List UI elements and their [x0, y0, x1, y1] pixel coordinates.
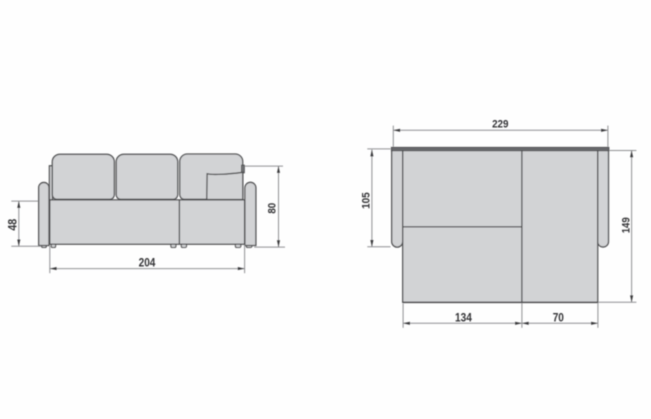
svg-text:48: 48 [6, 219, 20, 231]
svg-text:80: 80 [267, 203, 279, 214]
svg-text:134: 134 [455, 310, 472, 324]
svg-text:149: 149 [620, 217, 632, 233]
svg-text:105: 105 [361, 192, 373, 209]
svg-text:204: 204 [139, 256, 156, 270]
svg-text:70: 70 [553, 310, 564, 324]
svg-text:229: 229 [492, 119, 508, 131]
